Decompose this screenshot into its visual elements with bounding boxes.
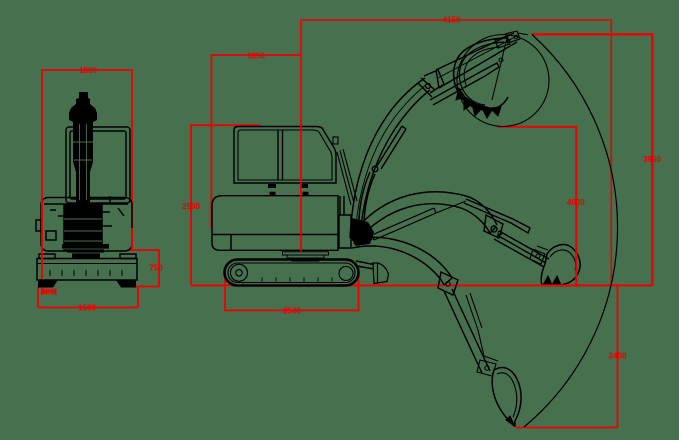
svg-text:2400: 2400 — [609, 352, 627, 361]
svg-text:2500: 2500 — [182, 202, 200, 211]
svg-text:3950: 3950 — [643, 155, 661, 164]
svg-text:4000: 4000 — [567, 198, 585, 207]
svg-text:750: 750 — [149, 264, 163, 273]
svg-text:2540: 2540 — [283, 307, 301, 316]
svg-text:1800: 1800 — [79, 66, 97, 75]
svg-text:1650: 1650 — [247, 52, 265, 61]
svg-text:400: 400 — [41, 288, 55, 297]
svg-text:4150: 4150 — [443, 16, 461, 25]
svg-text:1500: 1500 — [78, 304, 96, 313]
